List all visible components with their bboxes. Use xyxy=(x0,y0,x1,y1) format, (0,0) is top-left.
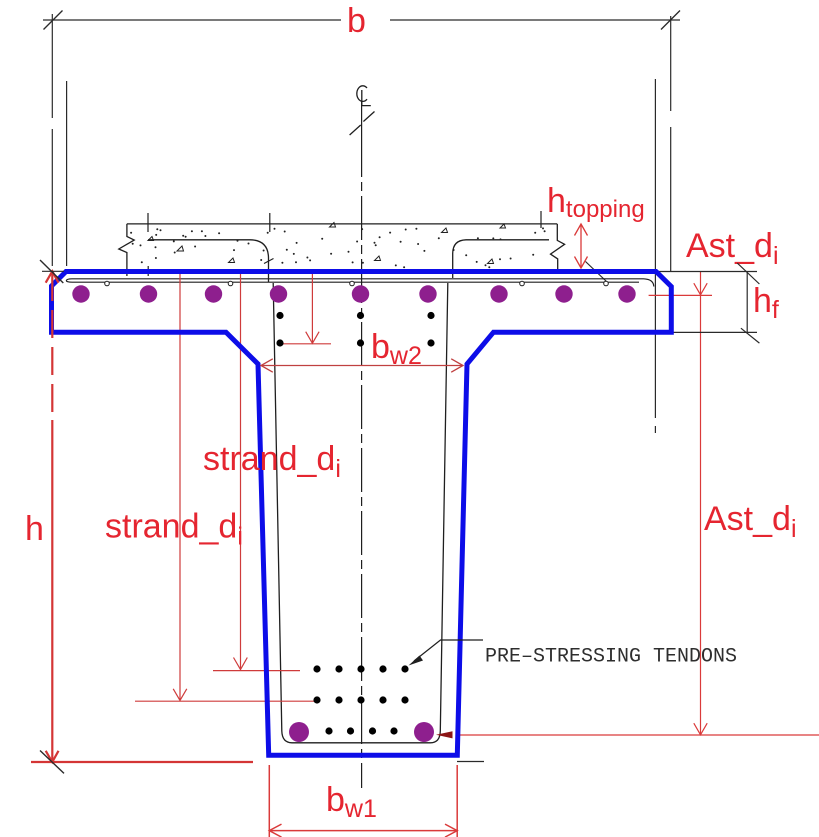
svg-text:strand_di: strand_di xyxy=(105,508,243,551)
svg-text:h: h xyxy=(25,510,44,548)
svg-text:Ast_di: Ast_di xyxy=(704,500,797,543)
svg-text:b: b xyxy=(347,2,366,40)
svg-text:strand_di: strand_di xyxy=(203,440,341,483)
svg-text:Ast_di: Ast_di xyxy=(686,227,779,270)
svg-text:PRE–STRESSING TENDONS: PRE–STRESSING TENDONS xyxy=(485,646,737,669)
